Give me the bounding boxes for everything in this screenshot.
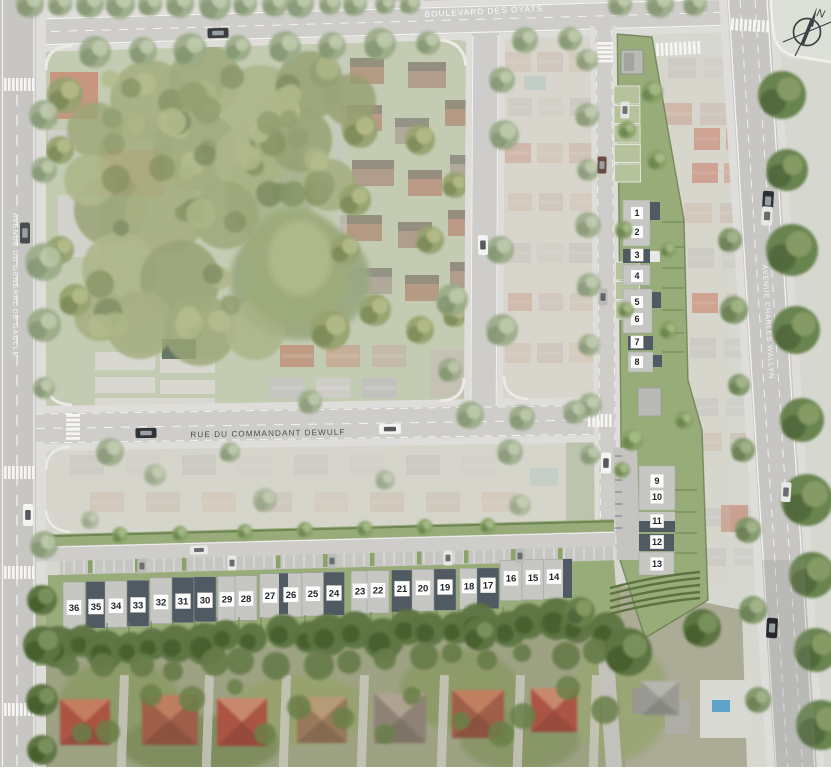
svg-text:17: 17 bbox=[483, 581, 494, 592]
svg-text:21: 21 bbox=[397, 584, 408, 595]
svg-text:1: 1 bbox=[634, 208, 639, 218]
svg-text:34: 34 bbox=[111, 601, 122, 612]
svg-text:22: 22 bbox=[373, 586, 384, 597]
svg-text:5: 5 bbox=[634, 297, 639, 307]
svg-text:26: 26 bbox=[286, 590, 297, 601]
svg-text:3: 3 bbox=[634, 250, 639, 260]
svg-text:31: 31 bbox=[178, 597, 189, 608]
svg-text:14: 14 bbox=[549, 572, 560, 583]
svg-text:20: 20 bbox=[418, 583, 429, 594]
svg-text:30: 30 bbox=[200, 596, 211, 607]
svg-text:27: 27 bbox=[265, 591, 276, 602]
svg-text:18: 18 bbox=[464, 581, 475, 592]
svg-text:36: 36 bbox=[69, 603, 80, 614]
svg-text:12: 12 bbox=[652, 537, 662, 547]
svg-text:15: 15 bbox=[528, 573, 539, 584]
svg-text:25: 25 bbox=[308, 589, 319, 600]
svg-text:28: 28 bbox=[241, 594, 252, 605]
svg-text:11: 11 bbox=[652, 516, 662, 526]
svg-text:16: 16 bbox=[506, 574, 517, 585]
svg-text:7: 7 bbox=[634, 337, 639, 347]
svg-text:6: 6 bbox=[634, 314, 639, 324]
svg-text:4: 4 bbox=[634, 271, 639, 281]
svg-text:35: 35 bbox=[91, 602, 102, 613]
svg-text:8: 8 bbox=[634, 357, 639, 367]
svg-text:29: 29 bbox=[222, 595, 233, 606]
svg-text:24: 24 bbox=[329, 588, 340, 599]
svg-text:19: 19 bbox=[440, 582, 451, 593]
svg-text:23: 23 bbox=[355, 586, 366, 597]
svg-text:9: 9 bbox=[654, 476, 659, 486]
svg-text:10: 10 bbox=[652, 492, 662, 502]
svg-text:2: 2 bbox=[634, 227, 639, 237]
svg-text:33: 33 bbox=[133, 600, 144, 611]
svg-text:32: 32 bbox=[156, 597, 167, 608]
svg-text:13: 13 bbox=[652, 559, 662, 569]
svg-text:AVENUE DU GÉNÉRAL DE GAULLE: AVENUE DU GÉNÉRAL DE GAULLE bbox=[11, 213, 20, 357]
